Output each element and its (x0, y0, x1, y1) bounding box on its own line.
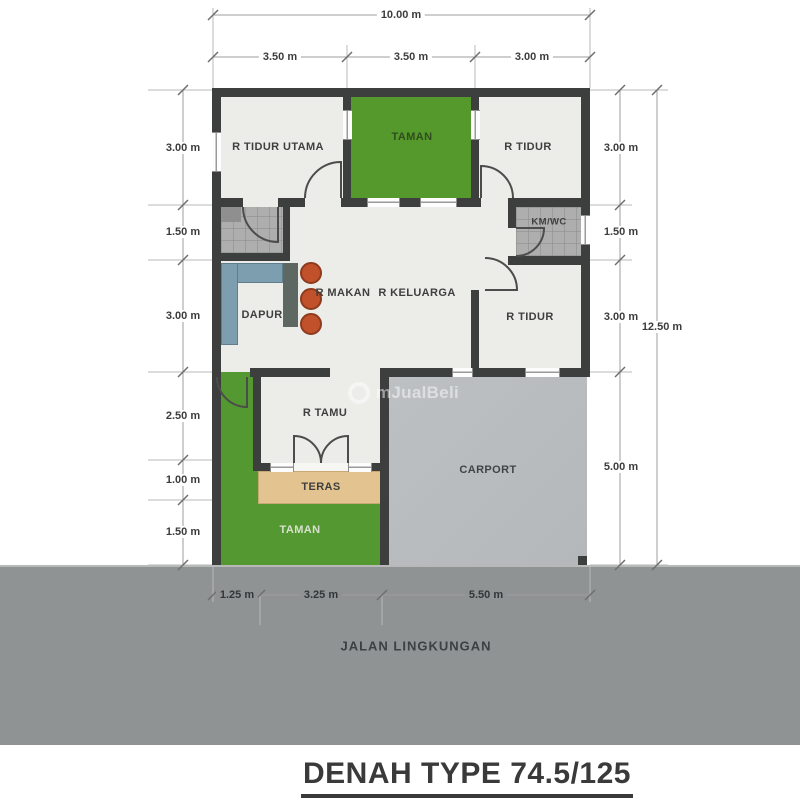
window (471, 110, 480, 140)
room-label-taman-top: TAMAN (392, 131, 433, 143)
room-label-r-tidur-top: R TIDUR (504, 141, 551, 153)
window (420, 198, 457, 207)
window (348, 463, 372, 472)
dim-right-total: 12.50 m (638, 321, 686, 333)
dim-top-total: 10.00 m (377, 9, 425, 21)
wall-seg (212, 198, 243, 207)
utility-room-corner (221, 207, 241, 222)
window (212, 132, 221, 172)
dim-right-segment-1: 1.50 m (600, 226, 642, 238)
wall-seg (508, 198, 516, 228)
road-area (0, 565, 800, 745)
room-label-carport: CARPORT (459, 464, 516, 476)
floorplan-canvas: R TIDUR UTAMA TAMAN R TIDUR KM/WC DAPUR … (0, 0, 800, 800)
wall-seg (513, 198, 590, 207)
wall-seg (253, 372, 261, 471)
dim-bottom-segment-2: 5.50 m (465, 589, 507, 601)
dim-top-segment-0: 3.50 m (259, 51, 301, 63)
wall-seg (457, 198, 481, 207)
dim-bottom-segment-0: 1.25 m (216, 589, 258, 601)
room-label-r-tamu: R TAMU (303, 407, 347, 419)
window (367, 198, 400, 207)
dim-left-segment-5: 1.50 m (162, 526, 204, 538)
wall-seg (278, 198, 305, 207)
room-label-r-keluarga: R KELUARGA (378, 287, 455, 299)
entrance-doorway (294, 463, 348, 471)
wall-seg (473, 368, 525, 377)
bathroom-zone (516, 207, 581, 256)
dim-top-segment-2: 3.00 m (511, 51, 553, 63)
window (452, 368, 473, 377)
room-label-r-tidur-mid: R TIDUR (506, 311, 553, 323)
dim-left-segment-2: 3.00 m (162, 310, 204, 322)
dim-top-segment-1: 3.50 m (390, 51, 432, 63)
wall-seg (253, 463, 270, 471)
dim-bottom-segment-1: 3.25 m (300, 589, 342, 601)
wall-carport-stub (578, 556, 587, 565)
room-label-r-tidur-utama: R TIDUR UTAMA (232, 141, 324, 153)
wall-seg (343, 140, 351, 198)
window (581, 215, 590, 245)
dim-right-segment-0: 3.00 m (600, 142, 642, 154)
dim-left-segment-1: 1.50 m (162, 226, 204, 238)
wall-seg (250, 368, 330, 377)
wall-top (212, 88, 590, 97)
wall-seg (560, 368, 590, 377)
window (270, 463, 294, 472)
stool (300, 313, 322, 335)
wall-seg (400, 198, 420, 207)
dim-left-segment-4: 1.00 m (162, 474, 204, 486)
wall-seg (341, 198, 367, 207)
living-room-floor (253, 372, 389, 471)
room-label-km-wc: KM/WC (531, 217, 566, 228)
room-label-teras: TERAS (301, 481, 340, 493)
room-label-r-makan: R MAKAN (316, 287, 371, 299)
wall-seg (372, 463, 385, 471)
garden-top-zone (348, 97, 474, 198)
road-label: JALAN LINGKUNGAN (340, 639, 491, 654)
window (343, 110, 352, 140)
window (525, 368, 560, 377)
stool (300, 262, 322, 284)
wall-seg (471, 97, 479, 110)
bar-counter (283, 263, 298, 327)
wall-seg (508, 256, 590, 265)
wall-seg (471, 290, 479, 377)
wall-seg (380, 368, 452, 377)
page-title: DENAH TYPE 74.5/125 (301, 757, 633, 798)
room-label-dapur: DAPUR (241, 309, 282, 321)
dim-right-segment-2: 3.00 m (600, 311, 642, 323)
wall-seg (212, 253, 290, 261)
wall-seg (471, 140, 479, 198)
dim-right-segment-3: 5.00 m (600, 461, 642, 473)
kitchen-counter-left (221, 263, 238, 345)
dim-left-segment-3: 2.50 m (162, 410, 204, 422)
wall-seg (343, 97, 351, 110)
room-label-taman-bottom: TAMAN (280, 524, 321, 536)
dim-left-segment-0: 3.00 m (162, 142, 204, 154)
